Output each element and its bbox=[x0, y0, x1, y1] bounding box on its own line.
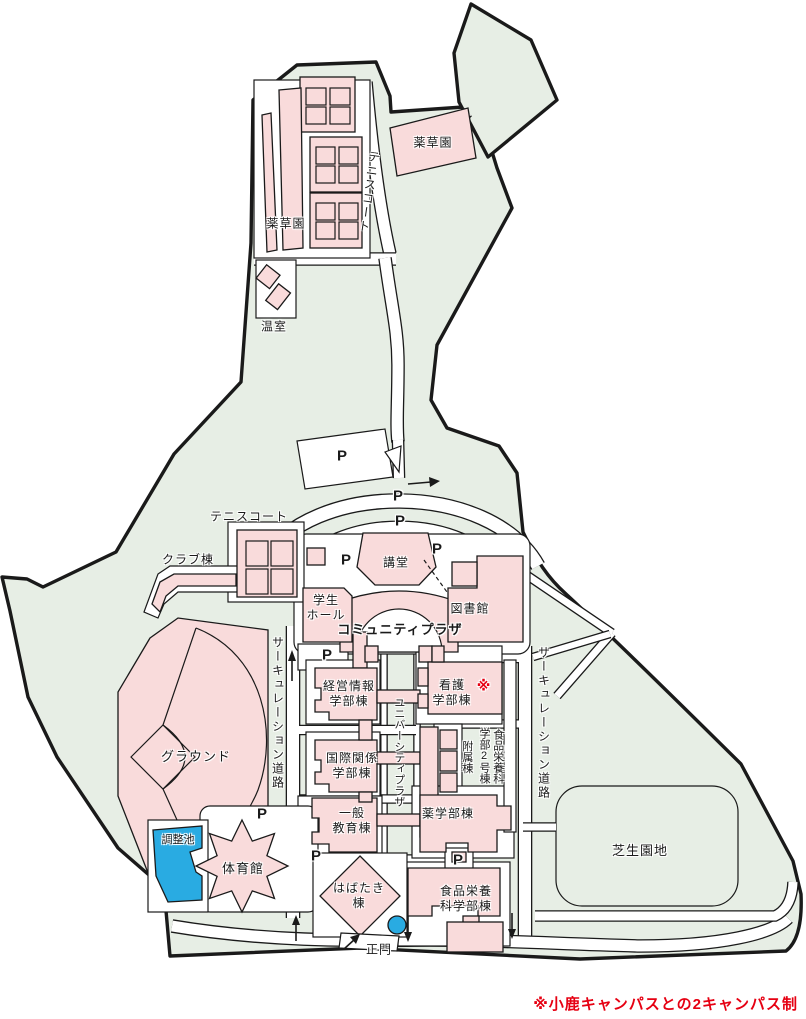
main-gate-label: 正門 bbox=[366, 943, 392, 958]
greenhouse-label: 温室 bbox=[261, 320, 287, 335]
international-relations-label: 国際関係 学部棟 bbox=[326, 751, 378, 781]
university-plaza-label: ユニバーシティプラザ bbox=[391, 697, 405, 807]
auditorium-label: 講堂 bbox=[383, 556, 409, 571]
tennis-court-label-mid: テニスコート bbox=[210, 510, 288, 525]
nursing-ref-mark: ※ bbox=[477, 677, 492, 695]
campus-note: ※小鹿キャンパスとの2キャンパス制 bbox=[533, 996, 798, 1015]
student-hall-label: 学生 ホール bbox=[306, 593, 345, 623]
nursing-label: 看護 学部棟 bbox=[432, 678, 471, 708]
community-plaza-label: コミュニティプラザ bbox=[337, 622, 462, 638]
circulation-road-label-east: サーキュレーション道路 bbox=[536, 646, 551, 800]
pond-label: 調整池 bbox=[162, 834, 195, 848]
fountain-circle bbox=[388, 916, 406, 934]
herb-garden-label-west: 薬草園 bbox=[266, 217, 305, 232]
parking-label-8: P bbox=[311, 848, 321, 867]
campus-map: 薬草園 薬草園 テニスコート 温室 P P P P P P P P P テニスコ… bbox=[0, 0, 806, 1019]
general-education-label: 一般 教育棟 bbox=[332, 806, 371, 836]
food-nutrition-label: 食品栄養 科学部棟 bbox=[440, 884, 492, 914]
herb-garden-label-north: 薬草園 bbox=[413, 136, 452, 151]
tennis-court-mid bbox=[237, 530, 297, 597]
pharmacy-label: 薬学部棟 bbox=[422, 807, 474, 822]
club-building-label: クラブ棟 bbox=[162, 553, 214, 568]
parking-label-9: P bbox=[453, 852, 463, 871]
habataki-label: はばたき 棟 bbox=[333, 881, 385, 911]
pharmacy-building bbox=[420, 795, 511, 852]
parking-label-1: P bbox=[337, 448, 347, 467]
parking-label-5: P bbox=[432, 541, 442, 560]
management-info-label: 経営情報 学部棟 bbox=[323, 679, 375, 709]
lawn-label: 芝生園地 bbox=[612, 843, 668, 859]
campus-map-svg bbox=[0, 0, 806, 1019]
ground-label: グラウンド bbox=[161, 749, 231, 765]
library-label: 図書館 bbox=[450, 602, 489, 617]
parking-label-7: P bbox=[257, 806, 267, 825]
circulation-road-label-west: サーキュレーション道路 bbox=[270, 636, 285, 790]
parking-label-2: P bbox=[393, 488, 403, 507]
food-nutrition-no2-label: 食品栄養科 学部2号棟 bbox=[476, 728, 504, 784]
gymnasium-label: 体育館 bbox=[222, 861, 264, 877]
annex-label: 附属棟 bbox=[459, 741, 473, 774]
parking-label-6: P bbox=[322, 647, 332, 666]
annex-buildings bbox=[440, 730, 457, 792]
parking-label-4: P bbox=[341, 552, 351, 571]
parking-label-3: P bbox=[395, 513, 405, 532]
